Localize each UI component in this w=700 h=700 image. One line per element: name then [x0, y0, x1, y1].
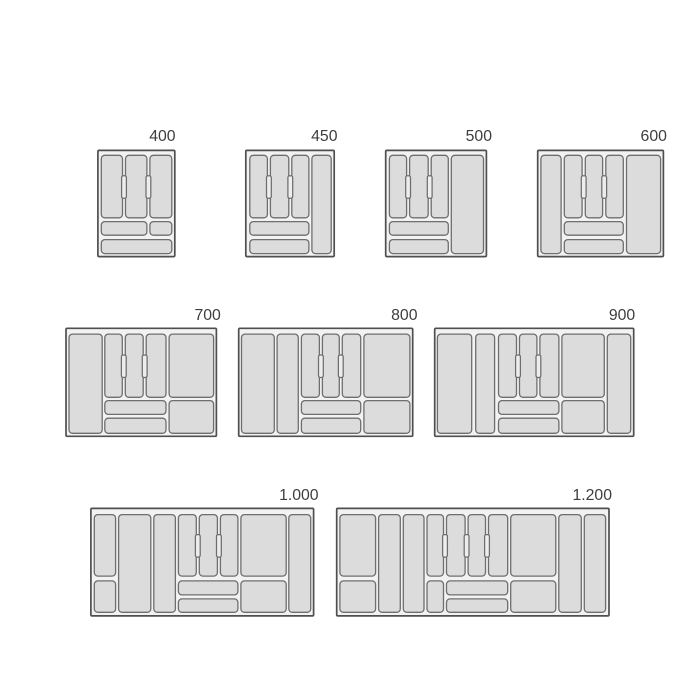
svg-text:800: 800 [391, 307, 418, 324]
svg-text:600: 600 [641, 128, 668, 145]
svg-text:900: 900 [609, 307, 636, 324]
svg-text:1.000: 1.000 [279, 487, 319, 504]
svg-text:500: 500 [466, 128, 493, 145]
svg-text:700: 700 [194, 307, 221, 324]
svg-text:1.200: 1.200 [572, 487, 612, 504]
svg-text:400: 400 [149, 128, 176, 145]
svg-text:450: 450 [311, 128, 338, 145]
